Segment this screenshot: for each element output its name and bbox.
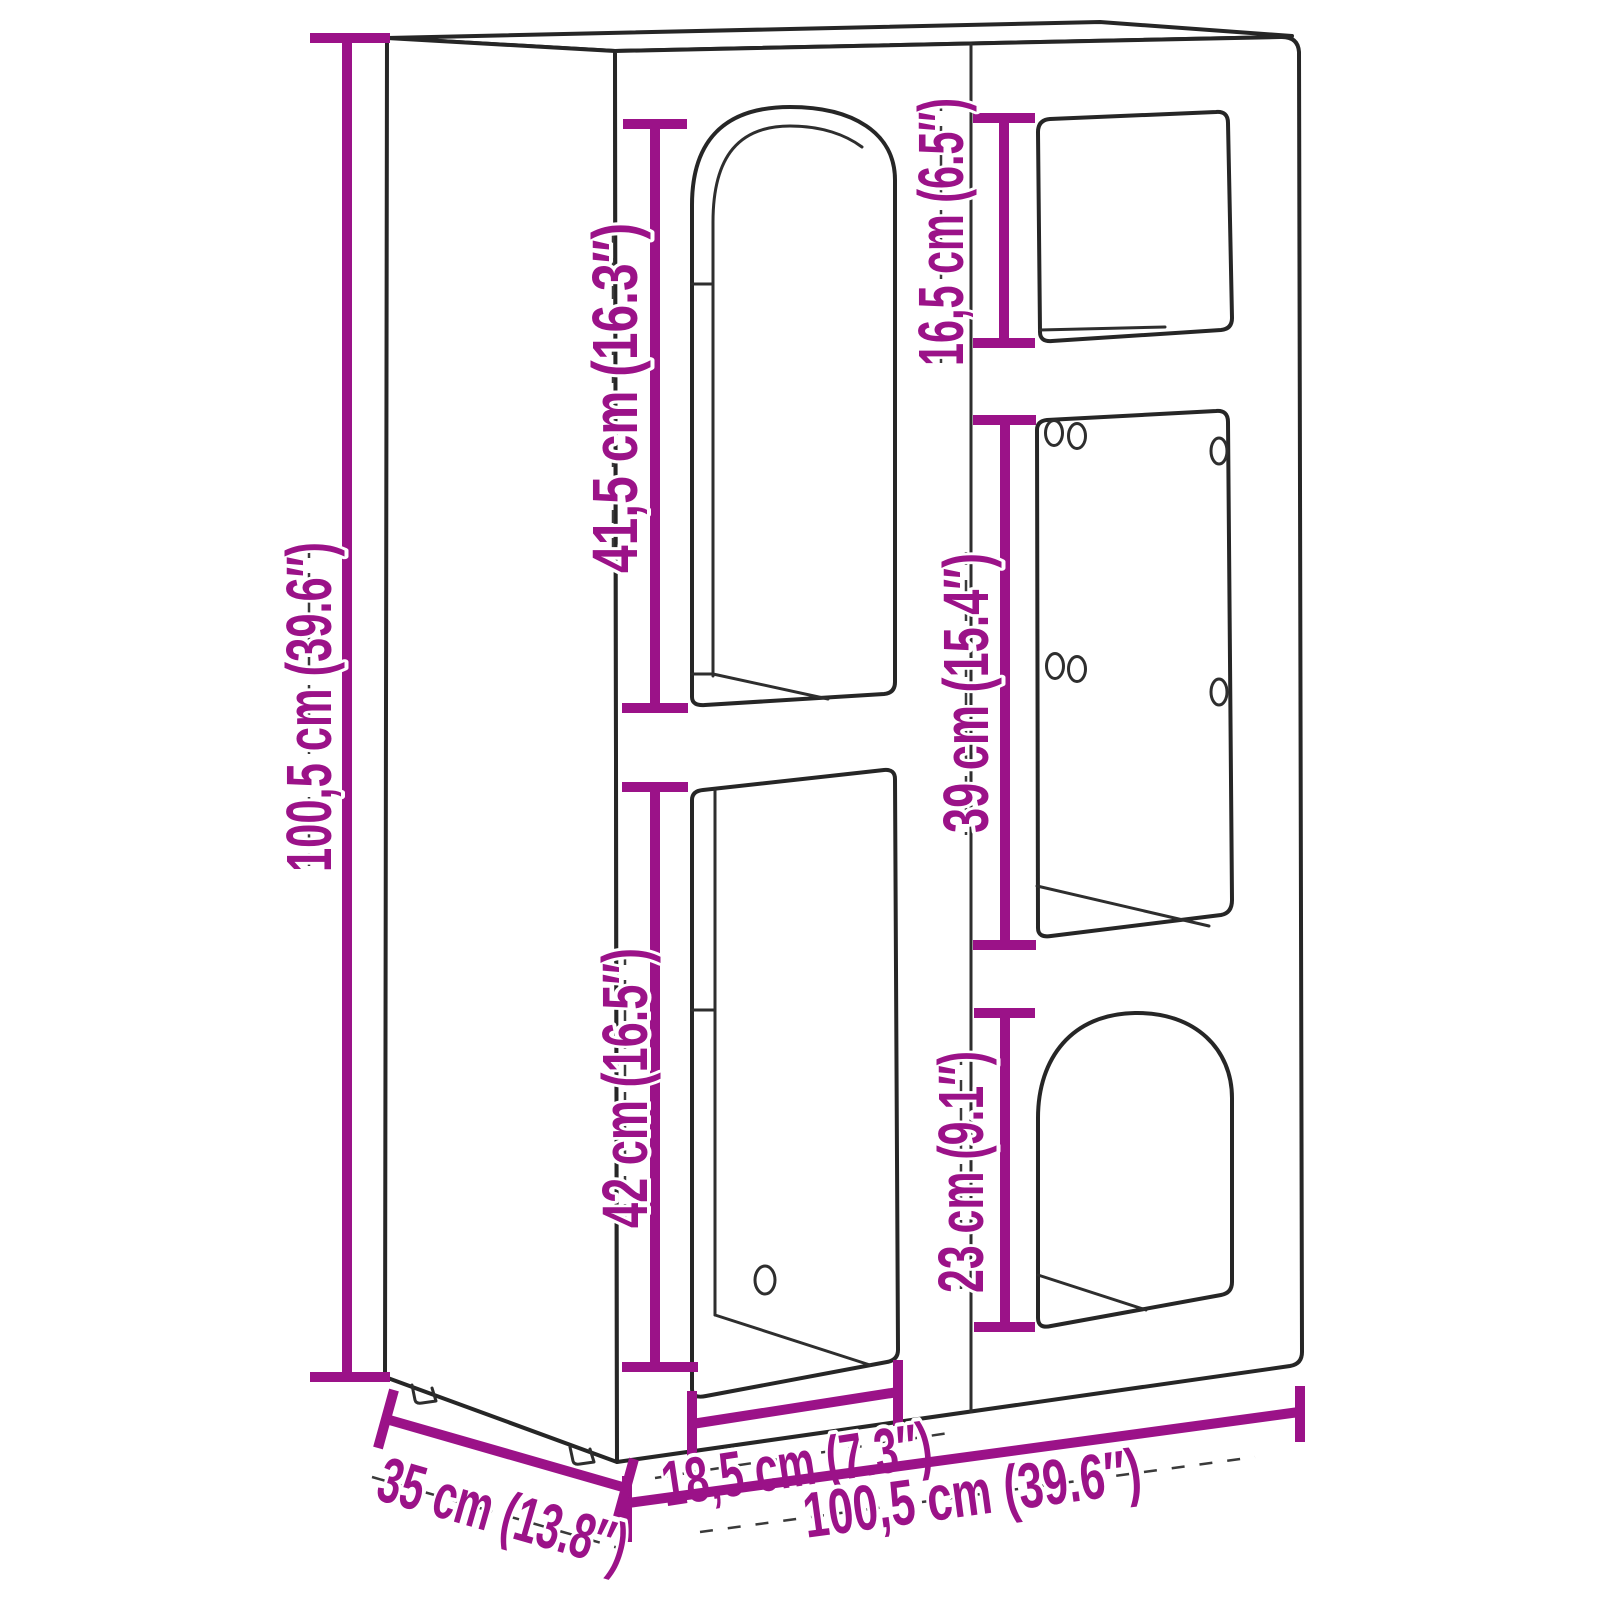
dim-label-overall-depth: 35 cm (13.8″) <box>370 1443 636 1583</box>
shelf-pin-hole <box>1069 657 1086 682</box>
shelf-pin-hole <box>1069 424 1086 449</box>
dim-label-top-right-opening: 16,5 cm (6.5″) <box>905 98 977 366</box>
cabinet-drawing <box>385 22 1302 1464</box>
shelf-pin-hole <box>1211 679 1227 705</box>
cable-hole <box>755 1266 775 1294</box>
dim-label-middle-right-opening: 39 cm (15.4″) <box>930 553 1002 833</box>
dim-label-overall-height: 100,5 cm (39.6″) <box>273 542 345 872</box>
dim-label-lower-left-opening: 42 cm (16.5″) <box>589 948 661 1228</box>
shelf-pin-hole <box>1211 438 1227 464</box>
shelf-pin-hole <box>1047 654 1064 679</box>
diagram-canvas: 100,5 cm (39.6″) 41,5 cm (16.3″) 42 cm (… <box>0 0 1600 1600</box>
dim-overall-height: 100,5 cm (39.6″) <box>273 38 390 1377</box>
dim-label-bottom-right-opening: 23 cm (9.1″) <box>925 1051 997 1293</box>
shelf-pin-hole <box>1046 421 1063 446</box>
dim-label-upper-left-opening: 41,5 cm (16.3″) <box>579 223 651 573</box>
dimension-diagram: 100,5 cm (39.6″) 41,5 cm (16.3″) 42 cm (… <box>0 0 1600 1600</box>
